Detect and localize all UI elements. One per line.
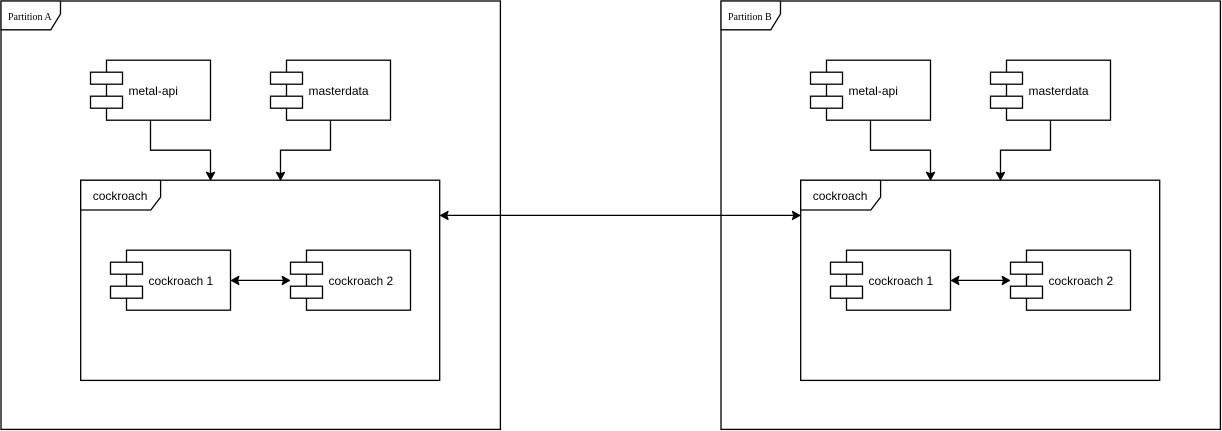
svg-text:cockroach 1: cockroach 1 [869, 274, 934, 288]
svg-text:masterdata: masterdata [1029, 84, 1089, 98]
svg-text:Partition B: Partition B [728, 12, 772, 23]
svg-text:cockroach 2: cockroach 2 [1049, 274, 1114, 288]
svg-text:cockroach: cockroach [93, 189, 148, 203]
svg-text:cockroach 1: cockroach 1 [149, 274, 214, 288]
svg-text:metal-api: metal-api [129, 84, 178, 98]
svg-text:cockroach: cockroach [813, 189, 868, 203]
svg-text:masterdata: masterdata [309, 84, 369, 98]
svg-text:cockroach 2: cockroach 2 [329, 274, 394, 288]
svg-text:metal-api: metal-api [849, 84, 898, 98]
svg-text:Partition A: Partition A [8, 12, 52, 23]
